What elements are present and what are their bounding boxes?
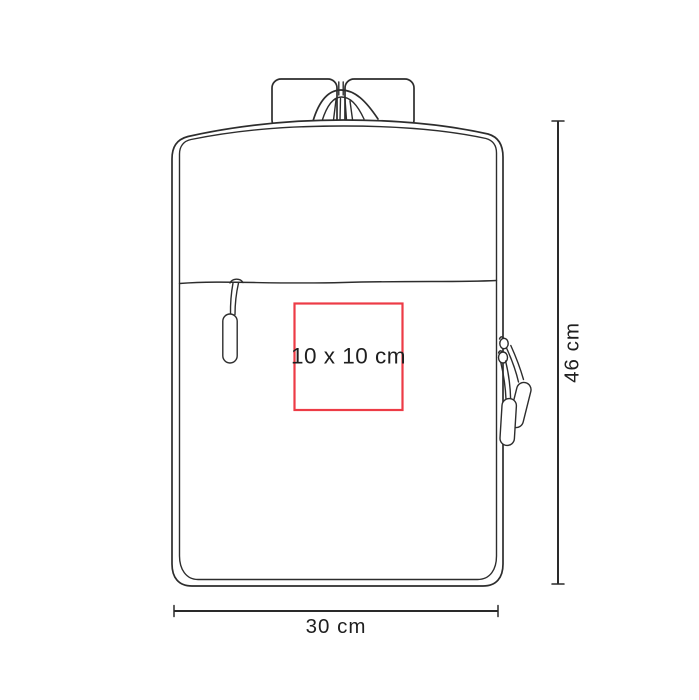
height-dimension-label: 46 cm	[561, 322, 584, 383]
print-area-label: 10 x 10 cm	[291, 344, 406, 369]
side-zipper-pull-tab-lower	[500, 398, 517, 446]
backpack-drawing	[172, 79, 533, 586]
width-dimension-label: 30 cm	[306, 615, 367, 638]
width-dimension: 30 cm	[174, 606, 498, 639]
backpack-print-area-diagram: 10 x 10 cm 46 cm 30 cm	[0, 0, 699, 700]
product-diagram-canvas: 10 x 10 cm 46 cm 30 cm	[0, 0, 699, 700]
front-zipper-pull-tab	[223, 314, 237, 363]
height-dimension: 46 cm	[552, 121, 584, 584]
zipper-slider-top	[500, 338, 508, 348]
